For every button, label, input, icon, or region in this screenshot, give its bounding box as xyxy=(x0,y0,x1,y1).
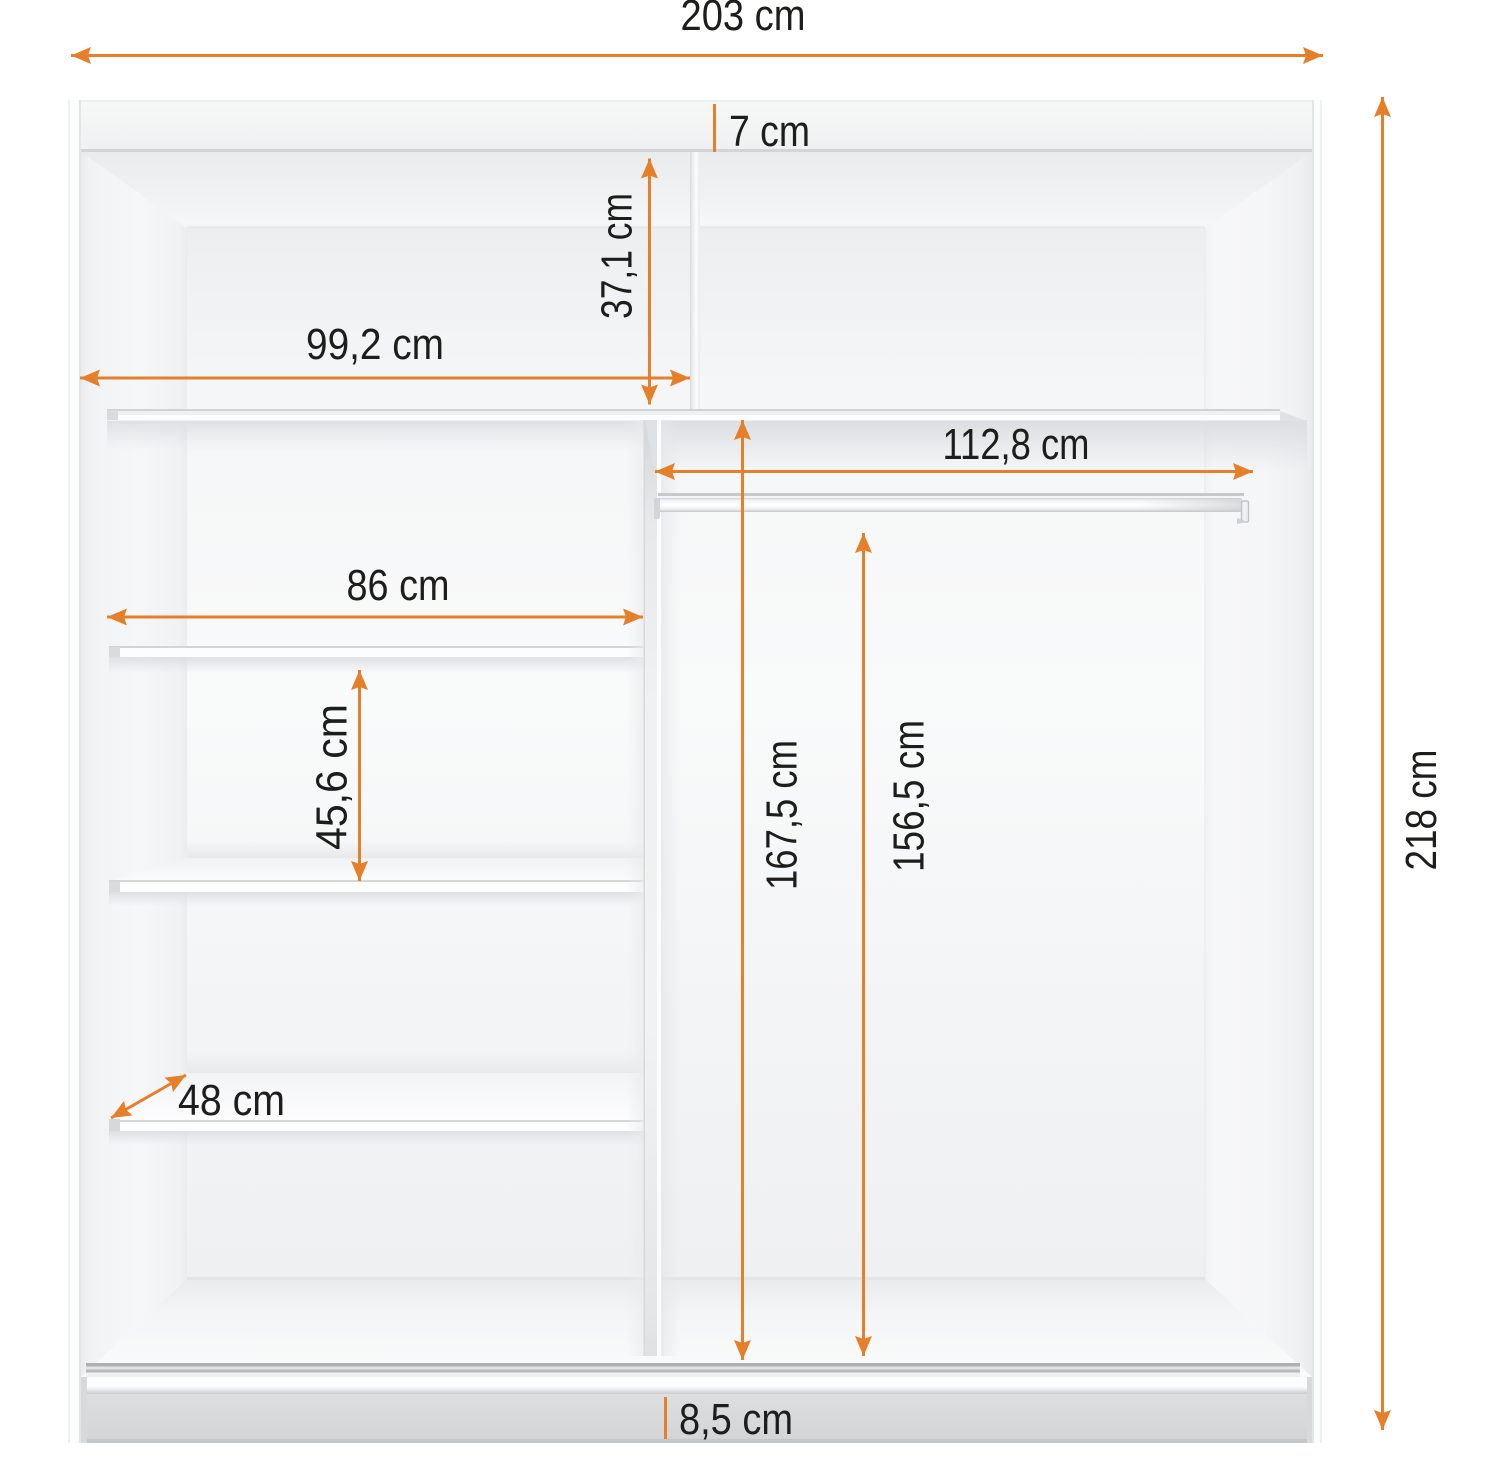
svg-text:8,5 cm: 8,5 cm xyxy=(679,1395,793,1444)
svg-text:218 cm: 218 cm xyxy=(1397,750,1446,871)
svg-text:48 cm: 48 cm xyxy=(178,1076,285,1125)
svg-text:203 cm: 203 cm xyxy=(681,0,806,40)
svg-text:45,6 cm: 45,6 cm xyxy=(308,704,357,850)
svg-text:86 cm: 86 cm xyxy=(347,561,450,610)
svg-text:167,5 cm: 167,5 cm xyxy=(758,740,807,890)
svg-text:7 cm: 7 cm xyxy=(729,107,810,156)
svg-text:99,2 cm: 99,2 cm xyxy=(306,320,444,369)
svg-text:37,1 cm: 37,1 cm xyxy=(593,193,642,319)
svg-text:112,8 cm: 112,8 cm xyxy=(943,420,1090,469)
svg-text:156,5 cm: 156,5 cm xyxy=(885,720,934,872)
